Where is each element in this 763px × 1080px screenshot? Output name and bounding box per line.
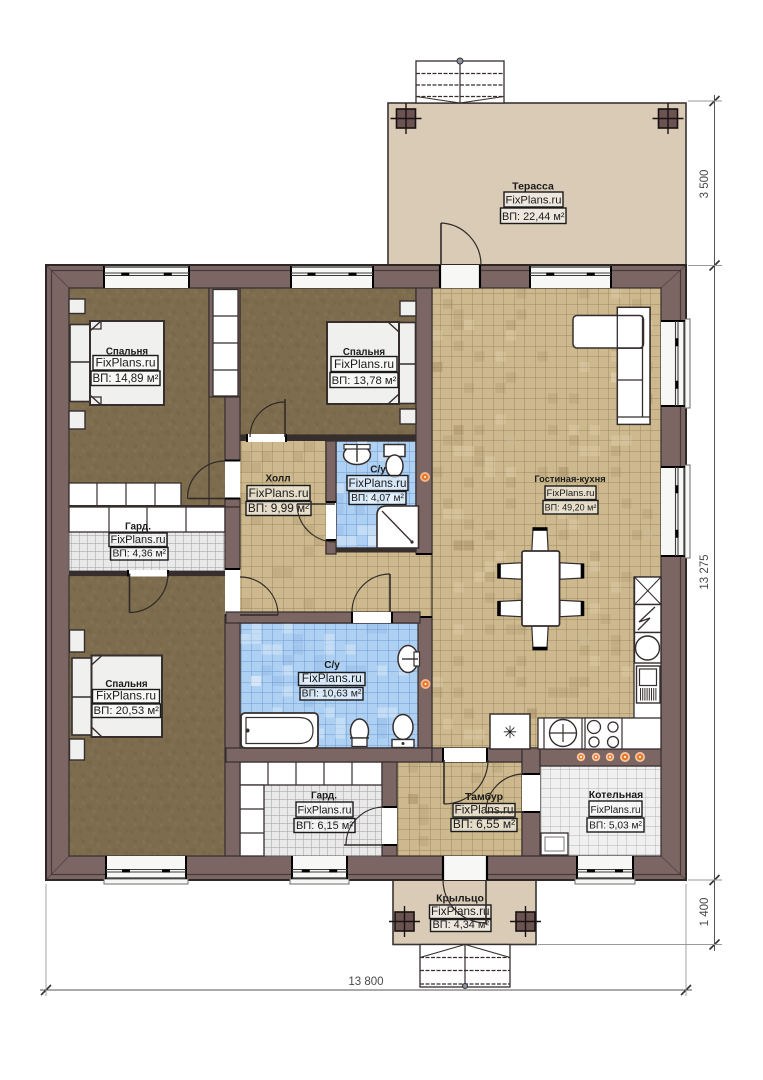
svg-text:Гард.: Гард. bbox=[125, 522, 151, 533]
svg-text:ВП: 4,34 м²: ВП: 4,34 м² bbox=[433, 919, 490, 931]
svg-text:ВП: 5,03 м²: ВП: 5,03 м² bbox=[589, 821, 642, 832]
svg-text:ВП: 4,36 м²: ВП: 4,36 м² bbox=[113, 549, 167, 560]
svg-text:Котельная: Котельная bbox=[589, 790, 643, 801]
svg-text:Крыльцо: Крыльцо bbox=[436, 893, 484, 905]
svg-text:FixPlans.ru: FixPlans.ru bbox=[95, 356, 155, 370]
svg-text:ВП: 4,07 м²: ВП: 4,07 м² bbox=[351, 493, 404, 504]
svg-text:Гард.: Гард. bbox=[311, 791, 337, 802]
svg-text:FixPlans.ru: FixPlans.ru bbox=[506, 195, 562, 207]
svg-text:FixPlans.ru: FixPlans.ru bbox=[431, 905, 489, 918]
svg-text:FixPlans.ru: FixPlans.ru bbox=[334, 357, 394, 371]
svg-text:ВП: 6,55 м²: ВП: 6,55 м² bbox=[453, 817, 515, 831]
svg-text:Холл: Холл bbox=[265, 474, 290, 485]
svg-text:ВП: 13,78 м²: ВП: 13,78 м² bbox=[332, 375, 397, 387]
svg-text:FixPlans.ru: FixPlans.ru bbox=[590, 805, 640, 816]
svg-text:ВП: 14,89 м²: ВП: 14,89 м² bbox=[92, 373, 158, 385]
svg-text:Гостиная-кухня: Гостиная-кухня bbox=[534, 474, 605, 484]
svg-text:✳: ✳ bbox=[503, 723, 517, 742]
svg-text:FixPlans.ru: FixPlans.ru bbox=[454, 803, 513, 817]
svg-text:1 400: 1 400 bbox=[699, 898, 711, 927]
svg-text:FixPlans.ru: FixPlans.ru bbox=[349, 477, 407, 490]
svg-text:ВП: 49,20 м²: ВП: 49,20 м² bbox=[545, 503, 597, 513]
svg-text:FixPlans.ru: FixPlans.ru bbox=[297, 805, 351, 817]
svg-text:FixPlans.ru: FixPlans.ru bbox=[248, 486, 308, 500]
svg-text:ВП: 10,63 м²: ВП: 10,63 м² bbox=[302, 689, 362, 700]
svg-text:ВП: 20,53 м²: ВП: 20,53 м² bbox=[94, 705, 160, 717]
svg-text:ВП: 22,44 м²: ВП: 22,44 м² bbox=[502, 211, 565, 223]
svg-text:FixPlans.ru: FixPlans.ru bbox=[302, 671, 362, 685]
svg-text:FixPlans.ru: FixPlans.ru bbox=[547, 488, 595, 499]
svg-text:13 800: 13 800 bbox=[348, 976, 383, 988]
svg-text:ВП: 6,15 м²: ВП: 6,15 м² bbox=[296, 820, 353, 832]
svg-text:С/у: С/у bbox=[370, 465, 386, 476]
svg-text:3 500: 3 500 bbox=[699, 170, 711, 199]
svg-text:Терасса: Терасса bbox=[512, 181, 554, 193]
svg-text:С/у: С/у bbox=[324, 660, 340, 671]
svg-text:FixPlans.ru: FixPlans.ru bbox=[96, 689, 156, 703]
svg-text:Тамбур: Тамбур bbox=[465, 791, 503, 803]
svg-text:FixPlans.ru: FixPlans.ru bbox=[110, 534, 165, 546]
svg-text:ВП: 9,99 м²: ВП: 9,99 м² bbox=[248, 501, 309, 515]
svg-text:13 275: 13 275 bbox=[699, 554, 711, 589]
